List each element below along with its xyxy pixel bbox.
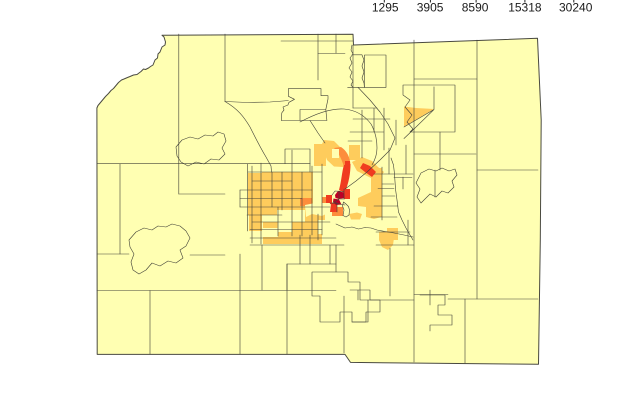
svg-text:30240: 30240 bbox=[559, 1, 593, 15]
svg-text:15318: 15318 bbox=[508, 1, 542, 15]
svg-text:3905: 3905 bbox=[417, 1, 444, 15]
svg-text:1295: 1295 bbox=[372, 1, 399, 15]
svg-text:8590: 8590 bbox=[462, 1, 489, 15]
